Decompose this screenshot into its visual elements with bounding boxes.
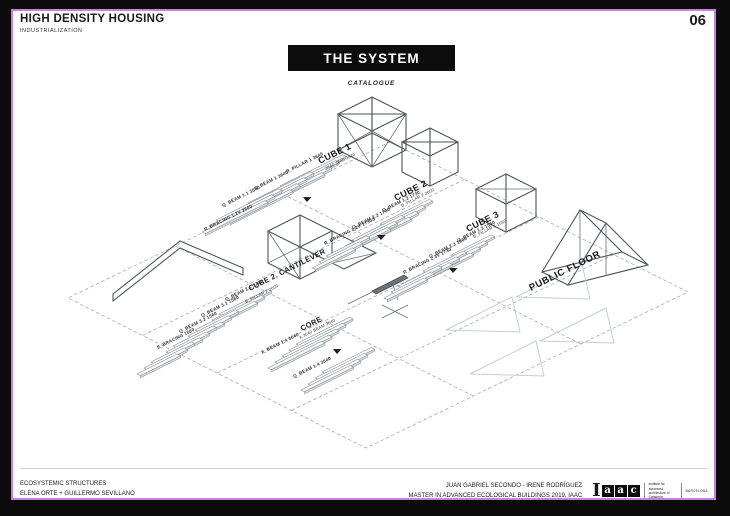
iaac-org-text: institute for advanced architecture of C…: [649, 482, 677, 499]
tutors: ELENA ORTE + GUILLERMO SEVILLANO: [20, 489, 135, 499]
iaac-logo-letter: a: [615, 485, 627, 497]
core-connector-piece: [348, 275, 408, 318]
footer-credits: JUAN GABRIEL SECONDO - IRENE RODRÍGUEZ M…: [408, 481, 582, 501]
public-floor-title: PUBLIC FLOOR: [527, 249, 602, 294]
part-label: R_BRACING 1.2V 2600: [203, 203, 253, 231]
authors: JUAN GABRIEL SECONDO - IRENE RODRÍGUEZ: [408, 481, 582, 491]
program: MASTER IN ADVANCED ECOLOGICAL BUILDINGS …: [408, 491, 582, 501]
iaac-logo-letter: a: [602, 485, 614, 497]
cantilever-beam-stacks: [137, 289, 272, 378]
plan-grid-dashed: [68, 142, 688, 448]
footer-left: ECOSYSTEMIC STRUCTURES ELENA ORTE + GUIL…: [20, 479, 135, 499]
cube3-beam-stacks: [384, 235, 495, 302]
catalogue-drawing: CUBE 1 3640 3640 3640 CUBE 2 B_PILLAR 2 …: [0, 0, 730, 516]
iaac-logo-initial: I: [592, 482, 600, 500]
iaac-logo-letter: c: [628, 485, 640, 497]
logo-divider: [681, 483, 682, 498]
footer-right: JUAN GABRIEL SECONDO - IRENE RODRÍGUEZ M…: [408, 481, 708, 501]
project-name: ECOSYSTEMIC STRUCTURES: [20, 479, 135, 489]
logo-divider: [644, 483, 645, 498]
cube2-beam-stacks: [312, 199, 433, 272]
cube2-structure: [402, 128, 458, 186]
footer: ECOSYSTEMIC STRUCTURES ELENA ORTE + GUIL…: [20, 468, 708, 503]
iaac-logo: I a a c institute for advanced architect…: [592, 482, 708, 500]
bracing-chevron-piece: [113, 241, 243, 301]
iaac-city-text: BARCELONA: [686, 489, 708, 493]
floor-panel-triangles: [446, 264, 614, 376]
